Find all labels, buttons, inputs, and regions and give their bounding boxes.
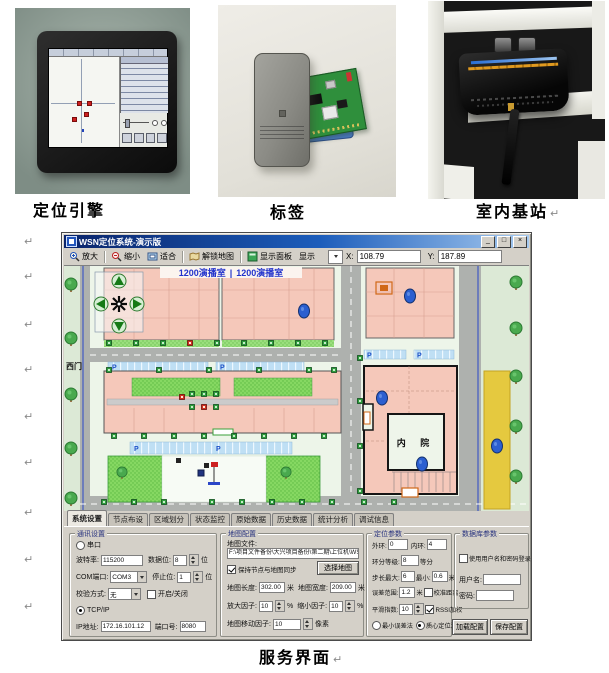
app-icon	[66, 236, 77, 247]
step-max-label: 步长最大:	[372, 572, 400, 582]
tab-system-settings[interactable]: 系统设置	[67, 510, 107, 526]
toggle-checkbox[interactable]	[147, 590, 156, 599]
tag-enclosure	[254, 53, 310, 167]
error-range-label: 误差范围:	[372, 588, 398, 597]
middle-building	[104, 371, 341, 435]
paragraph-mark: ↵	[24, 602, 33, 613]
device-slider	[122, 117, 167, 129]
stopbits-input[interactable]: 1	[177, 572, 191, 583]
map-file-input[interactable]: F:\项目文件备份\大兴项目备份\第二期\上位机\WSN	[227, 548, 359, 559]
sync-label[interactable]: 保持节点与地图同步	[238, 564, 297, 574]
y-coordinate-field[interactable]: 187.89	[438, 250, 502, 263]
smooth-stepper[interactable]	[414, 603, 424, 615]
map-viewport: 1200演播室|1200演播室 P P	[64, 265, 529, 512]
tag-marker[interactable]	[405, 289, 416, 303]
centroid-radio[interactable]	[416, 621, 425, 630]
device-menu-bar	[49, 49, 167, 57]
caption-tag: 标签	[270, 199, 306, 223]
group-database: 数据库参数 使用用户名和密码登录 用户名: 密码:	[454, 533, 529, 609]
window-title: WSN定位系统-演示版	[79, 236, 479, 248]
base-station-device	[458, 48, 569, 116]
parking-strip	[130, 442, 292, 454]
zoom-in-factor-input[interactable]: 10	[259, 601, 273, 612]
unit-m: 米	[287, 583, 294, 593]
inner-ring-label: 内环:	[411, 540, 426, 550]
zoom-out-button[interactable]: 缩小	[109, 250, 142, 263]
unit-m: 米	[416, 588, 422, 597]
group-title: 定位参数	[372, 529, 404, 539]
inner-yard-label: 内 院	[397, 437, 436, 448]
outer-ring-input[interactable]: 0	[388, 539, 408, 550]
lawn	[266, 456, 320, 502]
ip-label: IP地址:	[76, 622, 99, 632]
shelf-top	[442, 6, 605, 33]
pan-right-button[interactable]	[130, 297, 144, 311]
enclosure-grooves	[260, 126, 304, 142]
paragraph-mark: ↵	[24, 412, 33, 423]
use-login-checkbox[interactable]	[459, 554, 468, 563]
shelf-post-left	[428, 1, 444, 199]
parity-select[interactable]: 无	[108, 588, 141, 600]
caption-positioning-engine: 定位引擎	[33, 197, 105, 221]
caption-text: 服务界面	[259, 650, 331, 667]
parking-label: P	[112, 365, 117, 372]
tag-dot-blue	[82, 129, 84, 132]
port-input[interactable]: 8080	[180, 621, 206, 632]
plaza-node	[198, 470, 204, 476]
pcb-chip	[337, 99, 348, 109]
paragraph-mark: ↵	[550, 208, 559, 220]
coordinate-list-header	[121, 57, 168, 64]
show-panel-button[interactable]: 显示面板	[245, 250, 294, 263]
x-coordinate-field[interactable]: 108.79	[357, 250, 421, 263]
calibrate-checkbox[interactable]	[424, 588, 433, 597]
choose-map-label: 选择地图	[324, 563, 352, 573]
paragraph-mark: ↵	[24, 272, 33, 283]
unit-px: 像素	[315, 619, 329, 629]
zoom-in-factor-label: 放大因子:	[227, 601, 257, 611]
option-dot	[161, 120, 167, 126]
tcpip-label[interactable]: TCP/IP	[87, 607, 110, 614]
plot-axis-horizontal	[51, 103, 115, 104]
ring-grade-input[interactable]: 8	[401, 555, 419, 566]
zoom-in-label: 放大	[82, 251, 98, 262]
zoom-out-label: 缩小	[124, 251, 140, 262]
tab-raw-data[interactable]: 原始数据	[231, 513, 271, 526]
fit-icon	[147, 251, 158, 262]
studio-labels: 1200演播室|1200演播室	[179, 267, 284, 278]
center-dot	[118, 303, 121, 306]
minimize-button[interactable]: _	[481, 236, 495, 248]
tab-history-data[interactable]: 历史数据	[272, 513, 312, 526]
window-titlebar[interactable]: WSN定位系统-演示版 _ □ ×	[64, 235, 529, 248]
shelf-bottom-right	[578, 141, 605, 199]
show-label: 显示	[299, 251, 315, 262]
databits-input[interactable]: 8	[173, 555, 187, 566]
group-title: 数据库参数	[460, 529, 499, 539]
unit-bit: 位	[201, 555, 208, 565]
map-width-label: 地图宽度:	[298, 583, 328, 593]
document-page: ↵ ↵ ↵ ↵ ↵ ↵ ↵ ↵ ↵	[0, 0, 609, 673]
enclosure-button	[279, 110, 286, 117]
parity-label: 校验方式:	[76, 589, 106, 599]
baud-input[interactable]: 115200	[101, 555, 143, 566]
paragraph-mark: ↵	[24, 508, 33, 519]
fit-label: 适合	[160, 251, 176, 262]
save-config-label: 保存配置	[495, 622, 523, 632]
zoom-in-button[interactable]: 放大	[67, 250, 100, 263]
baud-label: 波特率:	[76, 555, 99, 565]
chevron-down-icon	[334, 255, 338, 258]
toolbar-separator	[240, 251, 241, 263]
chevron-down-icon[interactable]	[131, 589, 140, 599]
paragraph-mark: ↵	[333, 654, 342, 666]
outer-ring-label: 外环:	[372, 540, 387, 550]
zoom-out-factor-stepper[interactable]	[345, 600, 355, 612]
map-move-factor-stepper[interactable]	[303, 618, 313, 630]
campus-map-canvas[interactable]: 1200演播室|1200演播室 P P	[64, 266, 529, 512]
chevron-down-icon[interactable]	[137, 572, 146, 582]
plaza-marker	[176, 458, 181, 463]
parity-value: 无	[109, 589, 131, 599]
parking-label: P	[134, 446, 139, 453]
rssi-checkbox[interactable]	[425, 605, 434, 614]
choose-map-button[interactable]: 选择地图	[317, 561, 359, 575]
unlock-map-button[interactable]: 解锁地图	[187, 250, 236, 263]
min-error-radio[interactable]	[372, 621, 381, 630]
group-map-config: 地图配置 地图文件: F:\项目文件备份\大兴项目备份\第二期\上位机\WSN …	[220, 533, 364, 637]
show-button[interactable]: 显示	[297, 250, 317, 263]
photo-tag	[218, 5, 396, 197]
tag-marker[interactable]	[377, 391, 388, 405]
device-vents	[477, 101, 553, 107]
device-buttons	[122, 133, 167, 143]
tag-marker[interactable]	[417, 457, 428, 471]
com-port-value: COM3	[111, 574, 137, 581]
tab-status-monitor[interactable]: 状态监控	[190, 513, 230, 526]
map-length-input[interactable]: 302.00	[259, 582, 285, 593]
coordinate-list	[120, 57, 168, 113]
tag-dot	[72, 117, 77, 122]
step-max-input[interactable]: 6	[401, 571, 415, 582]
system-settings-panel: 通讯设置 串口 波特率: 115200 数据位: 8 位 COM端口: COM3…	[64, 526, 529, 639]
tcpip-radio[interactable]	[76, 606, 85, 615]
unlock-map-label: 解锁地图	[202, 251, 234, 262]
error-range-input[interactable]: 1.2	[399, 587, 415, 598]
show-panel-label: 显示面板	[260, 251, 292, 262]
lawn-strip	[222, 340, 334, 347]
pan-down-button[interactable]	[112, 319, 126, 333]
unit-m: 米	[358, 583, 365, 593]
paragraph-mark: ↵	[24, 458, 33, 469]
com-port-select[interactable]: COM3	[110, 571, 147, 583]
y-coordinate-label: Y:	[428, 252, 435, 261]
map-length-label: 地图长度:	[227, 583, 257, 593]
tab-node-layout[interactable]: 节点布设	[108, 513, 148, 526]
zoom-out-icon	[111, 251, 122, 262]
zoom-in-icon	[69, 251, 80, 262]
shelf-post-right	[592, 1, 605, 119]
tag-marker[interactable]	[492, 439, 503, 453]
photo-indoor-base-station	[428, 1, 605, 199]
unit-pct: %	[287, 603, 293, 610]
zoom-in-factor-stepper[interactable]	[275, 600, 285, 612]
password-label: 密码:	[459, 591, 475, 601]
zoom-out-factor-input[interactable]: 10	[329, 601, 343, 612]
step-min-label: 最小:	[416, 572, 431, 582]
smooth-input[interactable]: 10	[399, 604, 413, 615]
lawn	[108, 456, 162, 502]
unit-pct: %	[357, 603, 363, 610]
paragraph-mark: ↵	[24, 237, 33, 248]
device-plot-area	[49, 57, 120, 147]
pcb-component	[346, 72, 352, 82]
caption-indoor-base-station: 室内基站↵	[476, 198, 559, 222]
tab-statistics[interactable]: 统计分析	[313, 513, 353, 526]
pcb-label	[321, 105, 338, 120]
config-tabstrip: 系统设置 节点布设 区域划分 状态监控 原始数据 历史数据 统计分析 调试信息	[64, 511, 529, 526]
parking-label: P	[220, 365, 225, 372]
map-move-factor-label: 地图移动因子:	[227, 619, 271, 629]
tab-zone-division[interactable]: 区域划分	[149, 513, 189, 526]
toggle-label[interactable]: 开启/关闭	[158, 589, 188, 599]
parking-label: P	[367, 353, 372, 360]
parking-label: P	[216, 446, 221, 453]
pan-control	[94, 272, 144, 333]
databits-stepper[interactable]	[189, 554, 199, 566]
device-screen	[48, 48, 168, 148]
map-width-input[interactable]: 209.00	[330, 582, 356, 593]
plaza-marker	[204, 463, 209, 468]
username-input[interactable]	[483, 574, 521, 585]
unit-bit: 位	[205, 572, 212, 582]
password-input[interactable]	[476, 590, 514, 601]
photo-positioning-engine	[15, 8, 190, 194]
x-coordinate-label: X:	[346, 252, 354, 261]
serial-radio[interactable]	[76, 541, 85, 550]
pan-up-button[interactable]	[112, 274, 126, 288]
tag-dot	[84, 112, 89, 117]
zoom-out-factor-label: 缩小因子:	[297, 601, 327, 611]
group-communication: 通讯设置 串口 波特率: 115200 数据位: 8 位 COM端口: COM3…	[69, 533, 217, 637]
unit-div: 等分	[420, 556, 433, 566]
caption-service-interface: 服务界面↵	[259, 644, 342, 668]
smooth-label: 平滑指数:	[372, 605, 398, 614]
use-login-label[interactable]: 使用用户名和密码登录	[469, 554, 531, 563]
serial-label[interactable]: 串口	[87, 540, 101, 550]
ip-input[interactable]: 172.16.101.12	[101, 621, 151, 632]
load-config-button[interactable]: 加载配置	[452, 619, 488, 635]
com-port-label: COM端口:	[76, 572, 108, 582]
step-min-input[interactable]: 0.6	[432, 571, 448, 582]
paragraph-mark: ↵	[24, 320, 33, 331]
maximize-button[interactable]: □	[497, 236, 511, 248]
tag-dot	[77, 101, 82, 106]
pcb-module	[325, 80, 336, 90]
device-vents	[471, 95, 559, 102]
save-config-button[interactable]: 保存配置	[490, 619, 528, 635]
stopbits-label: 停止位:	[152, 572, 175, 582]
touch-panel-device	[37, 31, 177, 173]
username-label: 用户名:	[459, 575, 482, 585]
toolbar: 放大 缩小 适合 解锁地图 显示面板 显示	[64, 248, 529, 266]
tab-debug-info[interactable]: 调试信息	[354, 513, 394, 526]
panel-icon	[247, 251, 258, 262]
fit-button[interactable]: 适合	[145, 250, 178, 263]
databits-label: 数据位:	[148, 555, 171, 565]
map-icon	[189, 251, 200, 262]
group-title: 地图配置	[226, 529, 258, 539]
caption-text: 室内基站	[476, 204, 548, 221]
option-dot	[152, 120, 158, 126]
layer-combobox[interactable]	[328, 250, 343, 264]
group-title: 通讯设置	[75, 529, 107, 539]
sync-checkbox[interactable]	[227, 565, 236, 574]
west-gate-label: 西门	[66, 361, 82, 371]
parking-label: P	[417, 353, 422, 360]
device-orange-stripe	[468, 63, 558, 71]
tag-dot	[87, 101, 92, 106]
inner-ring-input[interactable]: 4	[427, 539, 447, 550]
toolbar-separator	[104, 251, 105, 263]
pan-left-button[interactable]	[94, 297, 108, 311]
ring-grade-label: 环分等级:	[372, 556, 400, 566]
min-error-label[interactable]: 最小误差法	[382, 621, 413, 630]
tag-marker[interactable]	[299, 304, 310, 318]
courtyard-building	[363, 366, 457, 497]
paragraph-mark: ↵	[24, 365, 33, 376]
port-label: 端口号:	[155, 622, 178, 632]
paragraph-mark: ↵	[24, 555, 33, 566]
load-config-label: 加载配置	[456, 622, 484, 632]
slider-knob	[125, 119, 130, 128]
map-move-factor-input[interactable]: 10	[273, 619, 301, 630]
toolbar-separator	[182, 251, 183, 263]
close-button[interactable]: ×	[513, 236, 527, 248]
group-positioning: 定位参数 外环: 0 内环: 4 环分等级: 8 等分 步长最大: 6 最小: …	[366, 533, 452, 637]
stopbits-stepper[interactable]	[193, 571, 203, 583]
wsn-app-window: WSN定位系统-演示版 _ □ × 放大 缩小 适合 解锁地图	[61, 232, 532, 641]
